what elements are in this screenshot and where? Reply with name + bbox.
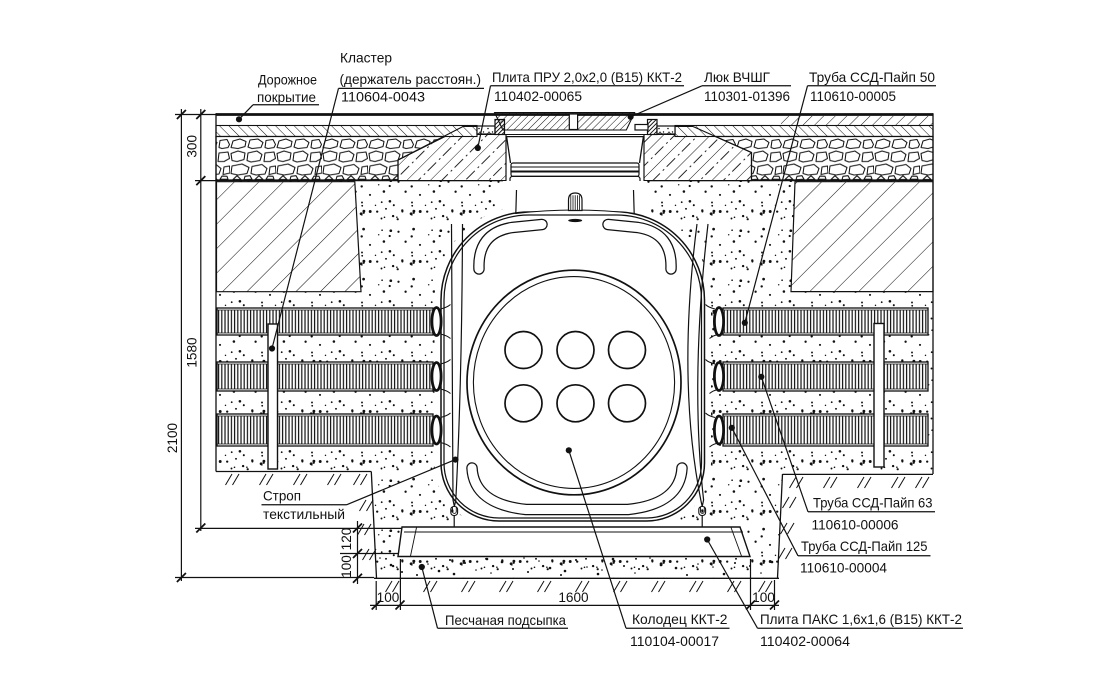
svg-text:Песчаная подсыпка: Песчаная подсыпка: [445, 613, 566, 628]
svg-text:110604-0043: 110604-0043: [341, 90, 425, 105]
svg-text:100: 100: [377, 590, 400, 605]
svg-text:110301-01396: 110301-01396: [704, 89, 790, 104]
svg-text:100: 100: [752, 590, 775, 605]
svg-text:Кластер: Кластер: [340, 51, 392, 66]
svg-text:(держатель расстоян.): (держатель расстоян.): [340, 72, 482, 87]
svg-text:текстильный: текстильный: [263, 507, 345, 522]
svg-text:Люк ВЧШГ: Люк ВЧШГ: [704, 70, 771, 85]
svg-text:110402-00065: 110402-00065: [494, 89, 582, 104]
svg-text:300: 300: [185, 135, 200, 158]
svg-text:1600: 1600: [558, 590, 589, 605]
svg-text:120: 120: [339, 527, 354, 550]
svg-text:110610-00004: 110610-00004: [800, 561, 887, 576]
svg-text:Труба ССД-Пайп 50: Труба ССД-Пайп 50: [809, 70, 935, 85]
svg-text:Труба ССД-Пайп 63: Труба ССД-Пайп 63: [813, 495, 933, 510]
svg-text:покрытие: покрытие: [257, 90, 316, 105]
svg-text:Колодец ККТ-2: Колодец ККТ-2: [632, 612, 728, 627]
svg-text:1580: 1580: [185, 337, 200, 368]
svg-text:100: 100: [339, 555, 354, 578]
svg-text:Дорожное: Дорожное: [258, 73, 317, 88]
svg-text:Плита ПРУ 2,0х2,0 (В15) ККТ-2: Плита ПРУ 2,0х2,0 (В15) ККТ-2: [492, 70, 682, 85]
svg-text:Труба ССД-Пайп 125: Труба ССД-Пайп 125: [801, 539, 928, 554]
svg-text:110104-00017: 110104-00017: [630, 634, 719, 649]
svg-text:110610-00005: 110610-00005: [810, 89, 896, 104]
svg-text:Плита ПАКС 1,6х1,6 (В15) ККТ-2: Плита ПАКС 1,6х1,6 (В15) ККТ-2: [760, 612, 962, 627]
svg-text:Строп: Строп: [263, 489, 301, 504]
svg-text:2100: 2100: [165, 422, 180, 453]
svg-text:110402-00064: 110402-00064: [760, 634, 850, 649]
svg-text:110610-00006: 110610-00006: [812, 517, 899, 532]
